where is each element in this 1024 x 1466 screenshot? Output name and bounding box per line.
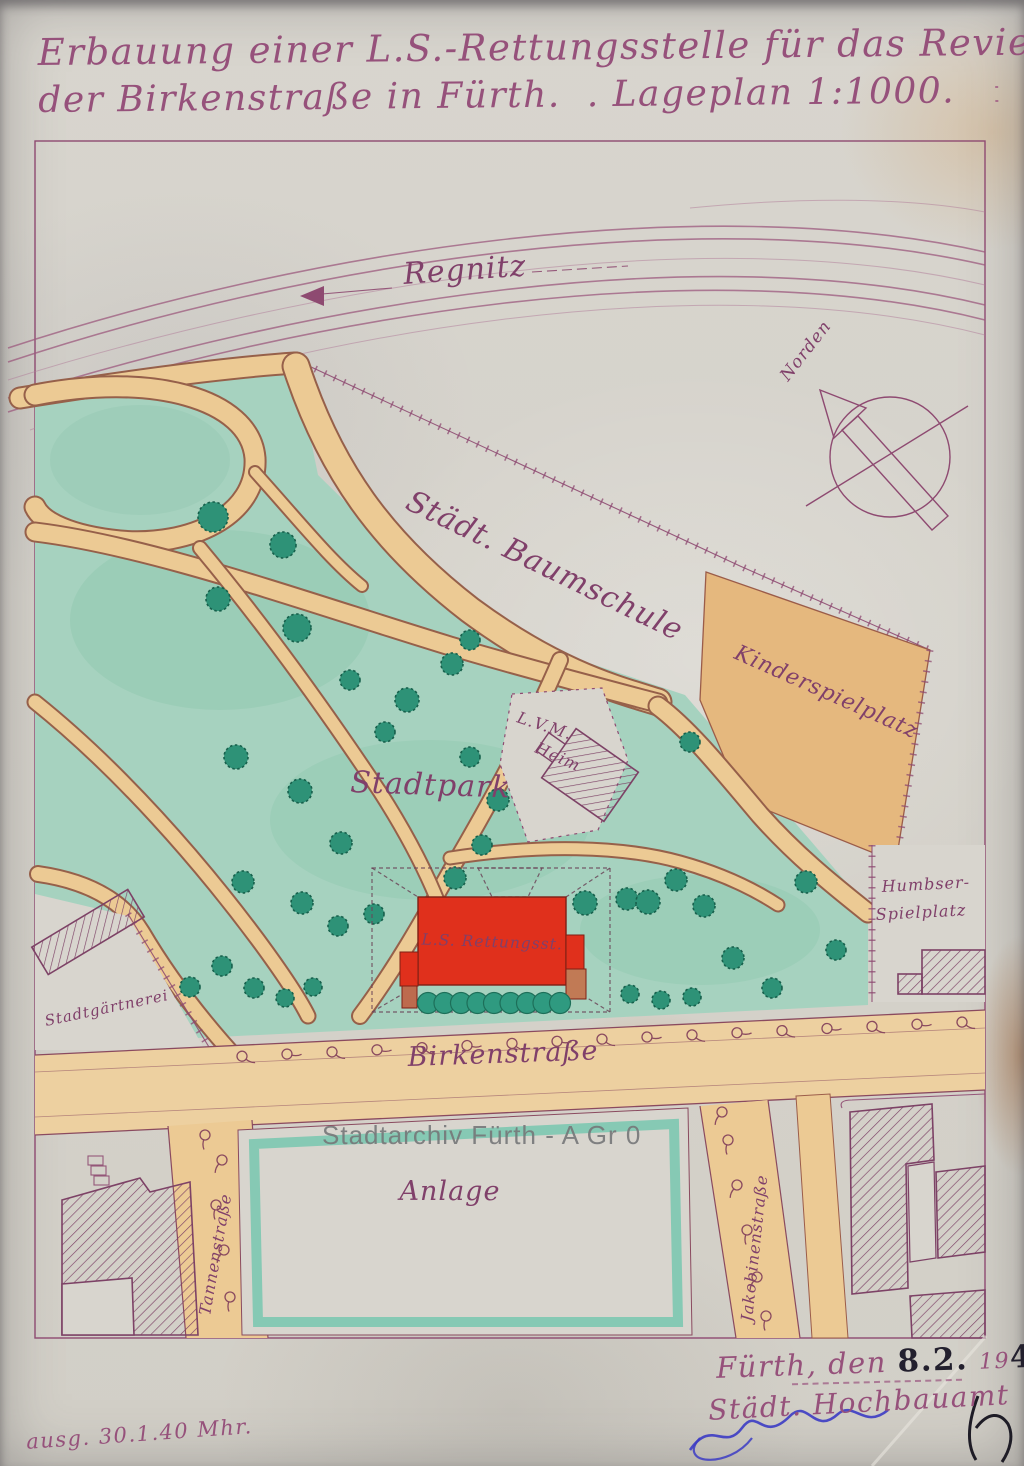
park-tree [224,745,248,769]
park-tree [288,779,312,803]
park-tree [328,916,348,936]
park-tree [212,956,232,976]
archive-watermark: Stadtarchiv Fürth - A Gr 0 [322,1120,641,1151]
park-tree [573,891,597,915]
north-arrow: Norden [776,317,968,530]
signature-blue-loop [694,1438,752,1460]
park-tree [693,895,715,917]
hedge-bush [550,993,571,1014]
park-tree [683,988,701,1006]
park-tree [762,978,782,998]
park-tree [722,947,744,969]
park-tree [244,978,264,998]
label-park: Stadtpark [350,765,511,806]
park-tree [616,888,638,910]
site-plan-map: Regnitz Norden Städt. Baumschule [0,0,1024,1466]
park-tree [395,688,419,712]
park-tree [232,871,254,893]
park-tree [375,722,395,742]
park-tree [340,670,360,690]
park-tree [652,991,670,1009]
humbser-spielplatz-area: Humbser- Spielplatz [872,845,985,1002]
park-tree [304,978,322,996]
scanned-plan-document: Erbauung einer L.S.-Rettungsstelle für d… [0,0,1024,1466]
park-tree [680,732,700,752]
park-tree [283,614,311,642]
park-tree [180,977,200,997]
park-tree [826,940,846,960]
buildings-southeast [796,1094,985,1338]
park-tree [621,985,639,1003]
park-tree [206,587,230,611]
park-tree [364,904,384,924]
park-tree [276,989,294,1007]
jakobinenstrasse-road: Jakobinenstraße [700,1100,800,1338]
park-tree [665,869,687,891]
date-value: 8.2. [897,1341,969,1379]
building-hedge [418,993,571,1014]
label-river: Regnitz [401,248,527,292]
park-tree [270,532,296,558]
park-tree [460,747,480,767]
park-tree [330,832,352,854]
label-north: Norden [776,317,836,386]
park-tree [444,867,466,889]
year-printed: 19 [979,1349,1011,1375]
park-tree [460,630,480,650]
park-tree [795,871,817,893]
park-tree [198,502,228,532]
park-tree [472,835,492,855]
label-green-area: Anlage [397,1176,501,1207]
year-value: 40 [1009,1338,1024,1376]
park-tree [291,892,313,914]
park-tree [441,653,463,675]
park-tree [636,890,660,914]
date-place-prefix: Fürth, den [716,1345,888,1385]
